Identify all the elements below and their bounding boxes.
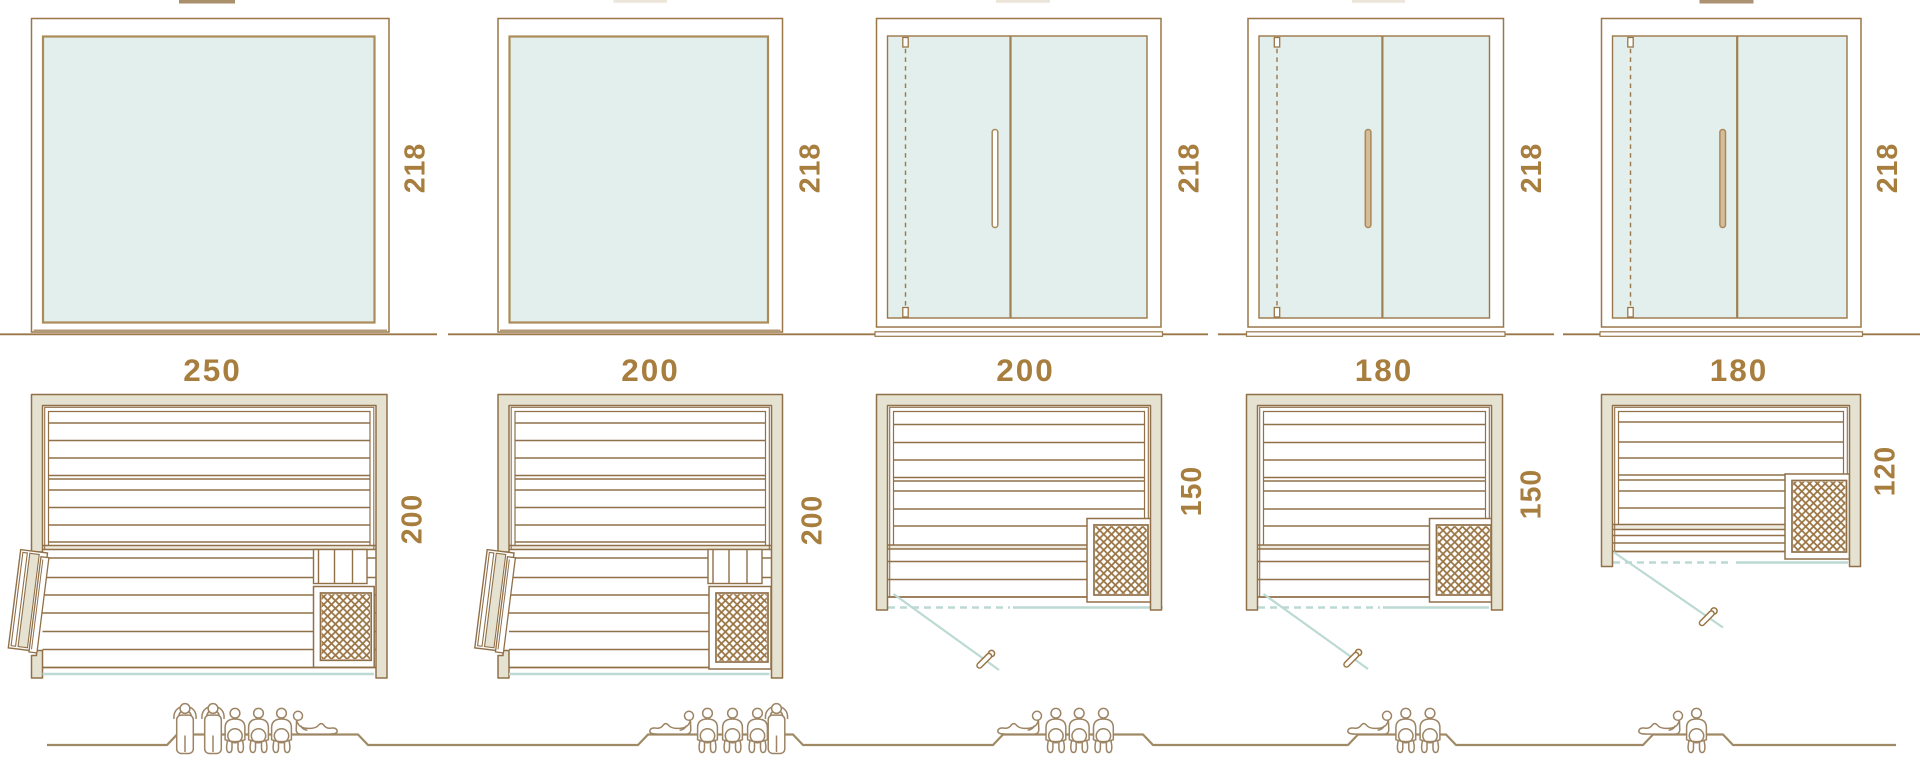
svg-text:218: 218 (1516, 143, 1548, 194)
svg-text:200: 200 (621, 352, 680, 388)
svg-text:150: 150 (1176, 466, 1208, 517)
svg-text:200: 200 (397, 494, 429, 545)
svg-text:150: 150 (1516, 469, 1548, 520)
svg-text:218: 218 (400, 143, 432, 194)
svg-text:180: 180 (1355, 352, 1414, 388)
svg-text:200: 200 (996, 352, 1055, 388)
svg-text:120: 120 (1870, 446, 1902, 497)
svg-text:180: 180 (1710, 352, 1769, 388)
svg-text:200: 200 (797, 495, 829, 546)
svg-text:218: 218 (1174, 143, 1206, 194)
svg-text:250: 250 (183, 352, 242, 388)
svg-text:218: 218 (1872, 143, 1904, 194)
svg-text:218: 218 (795, 143, 827, 194)
